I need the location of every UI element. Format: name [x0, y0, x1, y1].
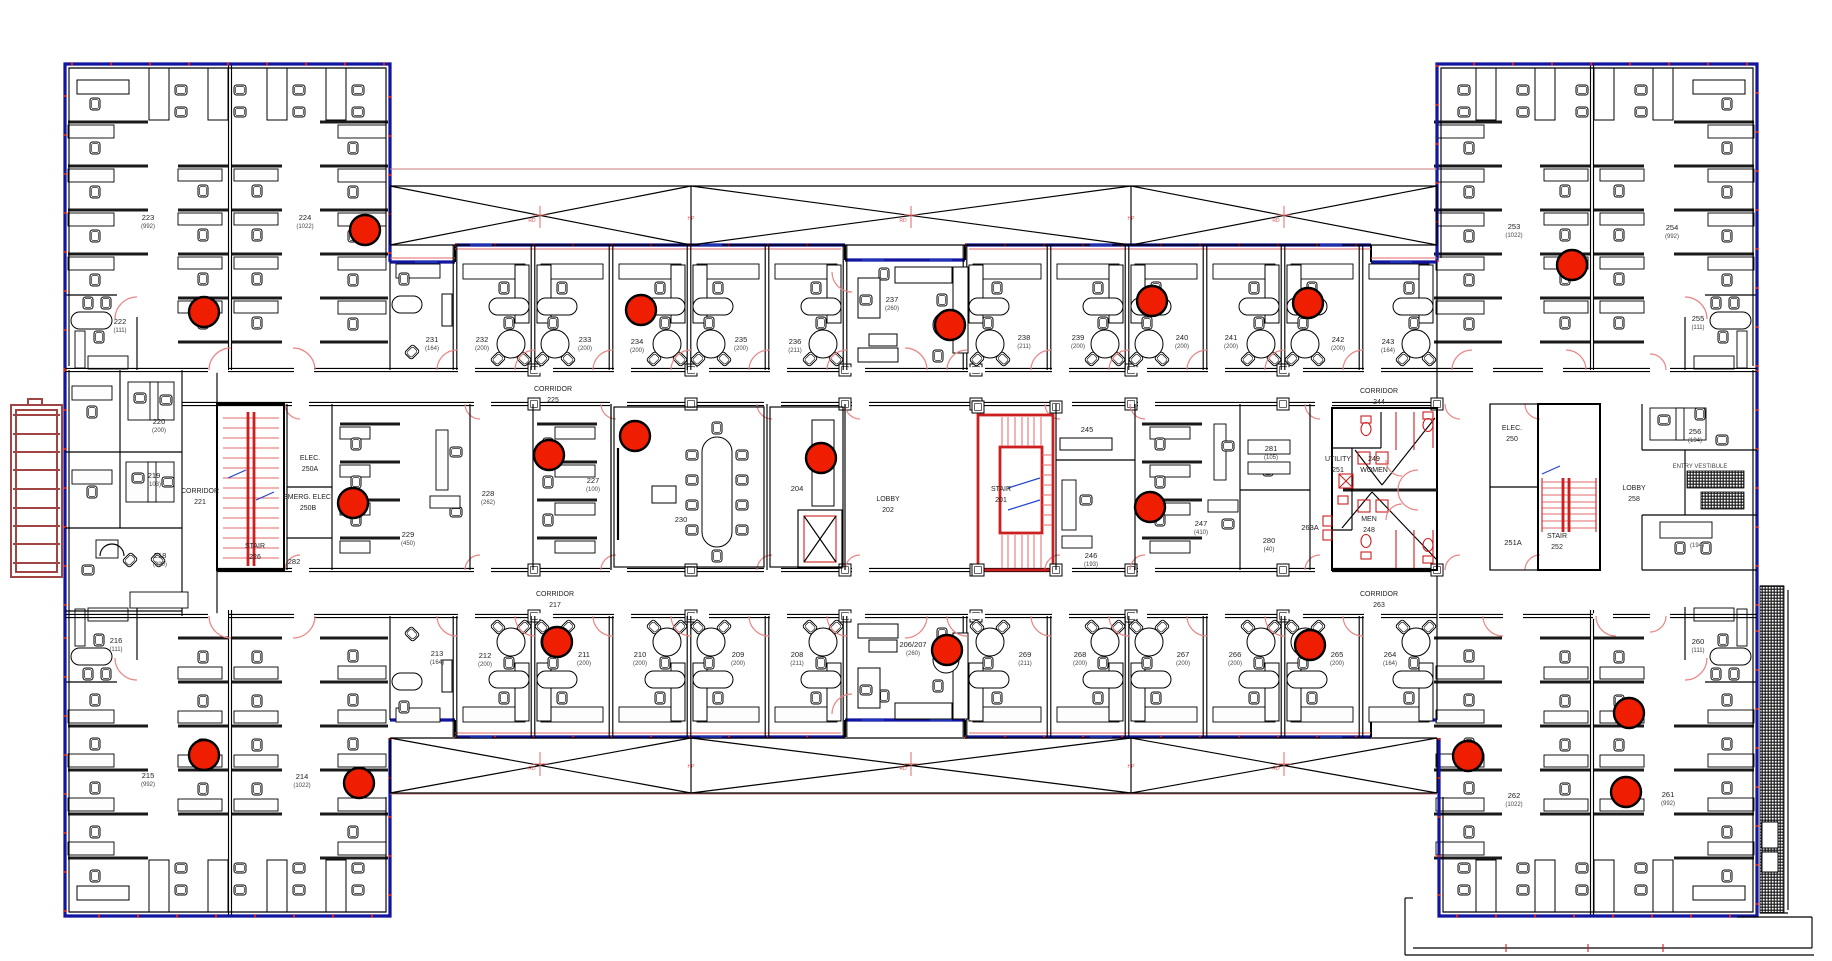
svg-text:232: 232	[476, 335, 489, 344]
svg-text:(200): (200)	[578, 346, 592, 352]
svg-text:(200): (200)	[152, 428, 166, 434]
svg-text:227: 227	[587, 476, 600, 485]
svg-text:(262): (262)	[481, 500, 495, 506]
svg-text:CORRIDOR: CORRIDOR	[534, 386, 572, 393]
svg-text:249: 249	[1368, 456, 1380, 463]
svg-text:(164): (164)	[1381, 348, 1395, 354]
svg-text:CORRIDOR: CORRIDOR	[1360, 591, 1398, 598]
svg-text:280: 280	[1263, 536, 1276, 545]
svg-text:220: 220	[153, 417, 166, 426]
svg-text:237: 237	[886, 295, 899, 304]
svg-text:(211): (211)	[790, 661, 804, 667]
svg-text:(1022): (1022)	[293, 783, 310, 789]
svg-text:213: 213	[431, 649, 444, 658]
svg-text:210: 210	[634, 650, 647, 659]
svg-text:(194): (194)	[1690, 543, 1704, 549]
svg-text:UTILITY: UTILITY	[1325, 456, 1351, 463]
svg-text:263A: 263A	[1301, 523, 1319, 532]
svg-text:RD: RD	[528, 218, 536, 224]
svg-text:(111): (111)	[109, 647, 122, 653]
svg-text:(200): (200)	[153, 562, 167, 568]
svg-text:214: 214	[296, 772, 309, 781]
svg-text:230: 230	[675, 515, 688, 524]
svg-text:(211): (211)	[1018, 661, 1032, 667]
svg-text:(100): (100)	[586, 487, 600, 493]
svg-text:STAIR: STAIR	[991, 486, 1011, 493]
svg-text:215: 215	[142, 771, 155, 780]
svg-text:246: 246	[1085, 551, 1098, 560]
svg-text:235: 235	[735, 335, 748, 344]
svg-text:(200): (200)	[1228, 661, 1242, 667]
svg-text:264: 264	[1384, 650, 1397, 659]
svg-text:HP: HP	[688, 764, 696, 770]
svg-text:(200): (200)	[1073, 661, 1087, 667]
svg-text:RD: RD	[1272, 218, 1280, 224]
svg-text:263: 263	[1373, 602, 1385, 609]
svg-text:268: 268	[1074, 650, 1087, 659]
svg-text:221: 221	[194, 499, 206, 506]
svg-text:HP: HP	[688, 216, 696, 222]
svg-text:204: 204	[791, 484, 804, 493]
svg-text:248: 248	[1363, 527, 1375, 534]
svg-text:(164): (164)	[1383, 661, 1397, 667]
svg-text:(200): (200)	[475, 346, 489, 352]
svg-text:234: 234	[631, 337, 644, 346]
svg-text:262: 262	[1508, 791, 1521, 800]
svg-text:CORRIDOR: CORRIDOR	[536, 591, 574, 598]
svg-text:(1022): (1022)	[1505, 233, 1522, 239]
svg-text:(200): (200)	[1175, 344, 1189, 350]
svg-text:RD: RD	[528, 766, 536, 772]
svg-text:(211): (211)	[788, 348, 802, 354]
svg-text:(111): (111)	[1691, 325, 1704, 331]
svg-text:WOMEN: WOMEN	[1360, 467, 1388, 474]
svg-text:282: 282	[288, 557, 301, 566]
svg-text:RD: RD	[1272, 766, 1280, 772]
svg-text:LOBBY: LOBBY	[1622, 485, 1646, 492]
svg-text:281: 281	[1265, 444, 1278, 453]
svg-text:(450): (450)	[401, 541, 415, 547]
svg-text:(200): (200)	[1176, 661, 1190, 667]
svg-text:231: 231	[426, 335, 439, 344]
svg-text:(103): (103)	[147, 482, 161, 488]
svg-text:(992): (992)	[141, 782, 155, 788]
svg-text:CORRIDOR: CORRIDOR	[1360, 388, 1398, 395]
svg-text:(111): (111)	[113, 328, 126, 334]
svg-text:267: 267	[1177, 650, 1190, 659]
svg-text:239: 239	[1072, 333, 1085, 342]
svg-text:209: 209	[732, 650, 745, 659]
svg-text:(200): (200)	[633, 661, 647, 667]
svg-text:222: 222	[114, 317, 127, 326]
svg-text:224: 224	[299, 213, 312, 222]
svg-text:(211): (211)	[1017, 344, 1031, 350]
svg-text:250A: 250A	[302, 466, 319, 473]
svg-text:(992): (992)	[1661, 801, 1675, 807]
svg-text:(200): (200)	[1330, 661, 1344, 667]
svg-text:217: 217	[549, 602, 561, 609]
svg-text:212: 212	[479, 651, 492, 660]
svg-text:(200): (200)	[1071, 344, 1085, 350]
svg-text:(1022): (1022)	[296, 224, 313, 230]
svg-text:254: 254	[1666, 223, 1679, 232]
svg-text:251A: 251A	[1504, 538, 1522, 547]
svg-text:(194): (194)	[1688, 438, 1702, 444]
svg-text:219: 219	[148, 471, 161, 480]
svg-text:252: 252	[1551, 544, 1563, 551]
svg-text:255: 255	[1692, 314, 1705, 323]
svg-text:240: 240	[1176, 333, 1189, 342]
svg-text:258: 258	[1628, 496, 1640, 503]
svg-text:(410): (410)	[1194, 530, 1208, 536]
svg-text:226: 226	[249, 554, 261, 561]
svg-text:233: 233	[579, 335, 592, 344]
svg-text:265: 265	[1331, 650, 1344, 659]
svg-text:238: 238	[1018, 333, 1031, 342]
svg-text:(200): (200)	[630, 348, 644, 354]
svg-text:241: 241	[1225, 333, 1238, 342]
svg-text:RD: RD	[899, 218, 907, 224]
svg-text:(200): (200)	[734, 346, 748, 352]
svg-text:253: 253	[1508, 222, 1521, 231]
svg-text:(200): (200)	[731, 661, 745, 667]
svg-text:218: 218	[154, 551, 167, 560]
svg-text:211: 211	[578, 650, 590, 659]
svg-text:(200): (200)	[1331, 346, 1345, 352]
svg-text:(260): (260)	[885, 306, 899, 312]
svg-text:LOBBY: LOBBY	[876, 496, 900, 503]
svg-text:HP: HP	[1128, 216, 1136, 222]
svg-text:(111): (111)	[1691, 648, 1704, 654]
svg-text:228: 228	[482, 489, 495, 498]
svg-text:223: 223	[142, 213, 155, 222]
svg-text:242: 242	[1332, 335, 1345, 344]
svg-text:HP: HP	[1128, 764, 1136, 770]
svg-text:250B: 250B	[300, 505, 317, 512]
svg-text:256: 256	[1689, 427, 1702, 436]
svg-text:CORRIDOR: CORRIDOR	[181, 488, 219, 495]
svg-text:251: 251	[1332, 467, 1344, 474]
svg-text:(1022): (1022)	[1505, 802, 1522, 808]
svg-text:(260): (260)	[906, 651, 920, 657]
svg-text:RD: RD	[899, 766, 907, 772]
svg-text:(992): (992)	[1665, 234, 1679, 240]
svg-text:201: 201	[995, 497, 1007, 504]
svg-text:EMERG. ELEC.: EMERG. ELEC.	[283, 494, 333, 501]
svg-text:ENTRY VESTIBULE: ENTRY VESTIBULE	[1673, 464, 1728, 470]
svg-text:ELEC.: ELEC.	[1502, 425, 1522, 432]
svg-text:(200): (200)	[577, 661, 591, 667]
svg-text:STAIR: STAIR	[1547, 533, 1567, 540]
svg-text:(200): (200)	[478, 662, 492, 668]
svg-text:261: 261	[1662, 790, 1675, 799]
svg-text:247: 247	[1195, 519, 1208, 528]
svg-text:MEN: MEN	[1361, 516, 1377, 523]
svg-text:260: 260	[1692, 637, 1705, 646]
svg-text:(105): (105)	[1264, 455, 1278, 461]
svg-text:206/207: 206/207	[899, 640, 926, 649]
svg-text:250: 250	[1506, 436, 1518, 443]
svg-text:216: 216	[110, 636, 123, 645]
svg-text:266: 266	[1229, 650, 1242, 659]
svg-text:202: 202	[882, 507, 894, 514]
svg-text:244: 244	[1373, 399, 1385, 406]
svg-text:(164): (164)	[425, 346, 439, 352]
svg-text:(40): (40)	[1264, 547, 1275, 553]
svg-text:245: 245	[1081, 425, 1094, 434]
svg-text:236: 236	[789, 337, 802, 346]
svg-text:229: 229	[402, 530, 415, 539]
svg-text:269: 269	[1019, 650, 1032, 659]
svg-text:243: 243	[1382, 337, 1395, 346]
svg-text:ELEC.: ELEC.	[300, 455, 320, 462]
svg-text:(992): (992)	[141, 224, 155, 230]
svg-text:225: 225	[547, 397, 559, 404]
svg-text:STAIR: STAIR	[245, 543, 265, 550]
svg-text:(193): (193)	[1084, 562, 1098, 568]
svg-text:208: 208	[791, 650, 804, 659]
svg-text:(200): (200)	[1224, 344, 1238, 350]
svg-text:(164): (164)	[430, 660, 444, 666]
